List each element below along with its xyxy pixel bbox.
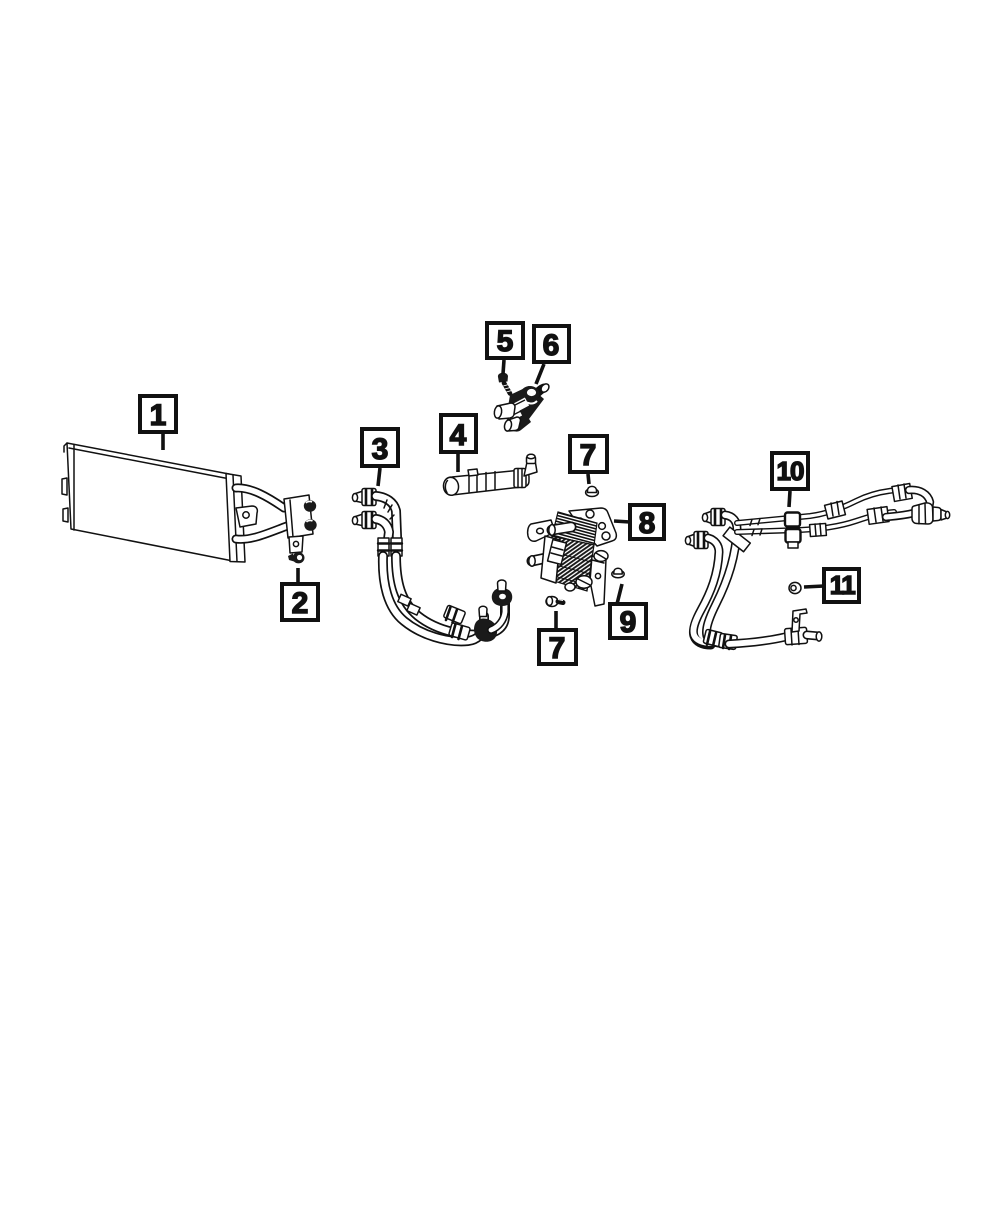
svg-text:7: 7 [549,632,566,665]
svg-text:2: 2 [292,587,309,620]
svg-text:6: 6 [543,329,560,362]
svg-text:9: 9 [620,606,637,639]
svg-text:4: 4 [450,419,467,452]
svg-text:7: 7 [580,439,597,472]
svg-text:1: 1 [150,399,167,432]
svg-text:10: 10 [777,456,804,486]
svg-text:3: 3 [372,433,389,466]
svg-text:8: 8 [639,507,656,540]
svg-text:11: 11 [830,570,856,600]
svg-text:5: 5 [497,325,514,358]
